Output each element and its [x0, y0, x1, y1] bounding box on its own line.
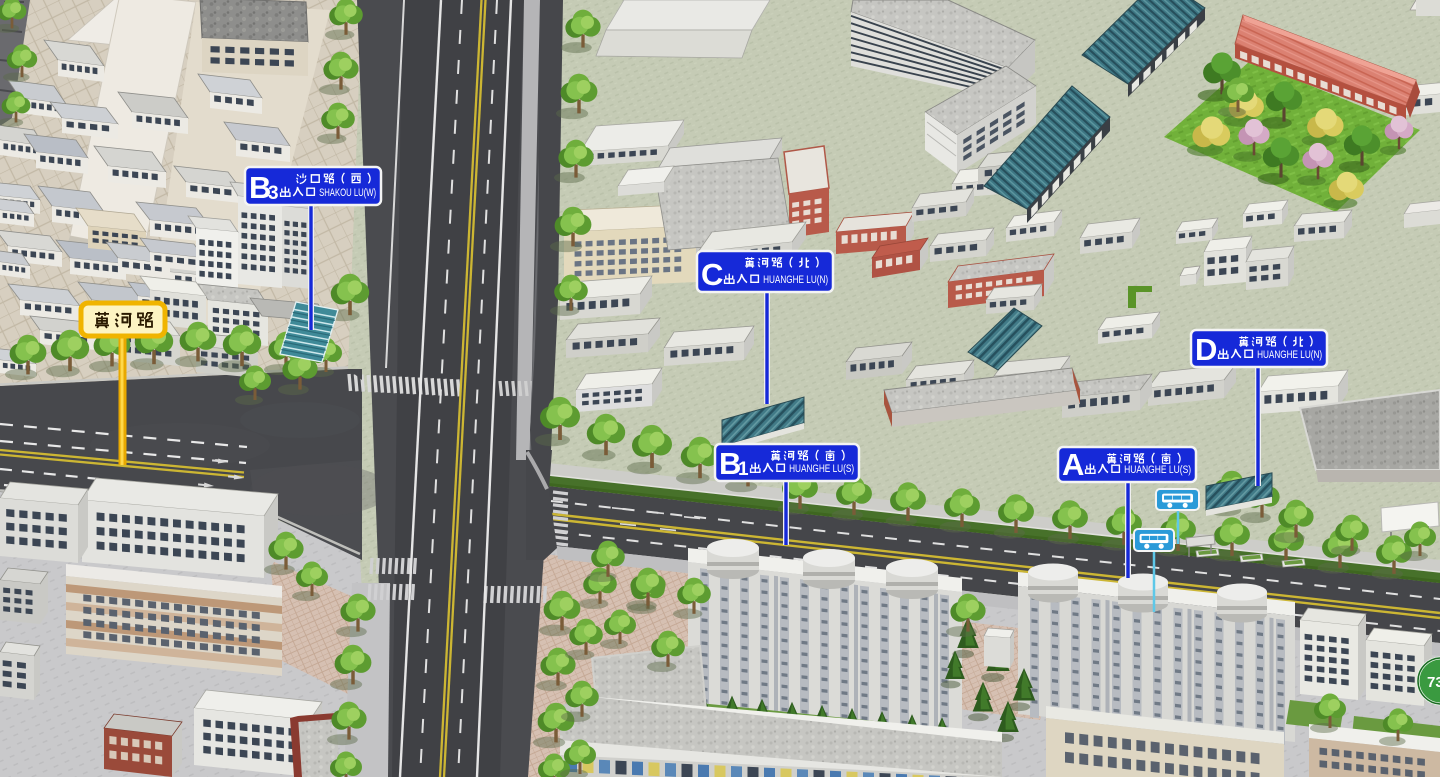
svg-text:D: D: [1195, 332, 1217, 367]
svg-text:HUANGHE LU(N): HUANGHE LU(N): [763, 274, 828, 286]
svg-text:C: C: [701, 257, 723, 292]
svg-text:SHAKOU LU(W): SHAKOU LU(W): [319, 187, 376, 199]
svg-text:HUANGHE LU(S): HUANGHE LU(S): [1124, 464, 1191, 476]
svg-text:HUANGHE LU(S): HUANGHE LU(S): [789, 463, 854, 475]
svg-text:HUANGHE LU(N): HUANGHE LU(N): [1257, 349, 1322, 361]
svg-text:1: 1: [738, 459, 749, 480]
svg-text:A: A: [1062, 447, 1084, 482]
svg-text:73: 73: [1427, 674, 1440, 691]
svg-text:3: 3: [268, 183, 279, 204]
